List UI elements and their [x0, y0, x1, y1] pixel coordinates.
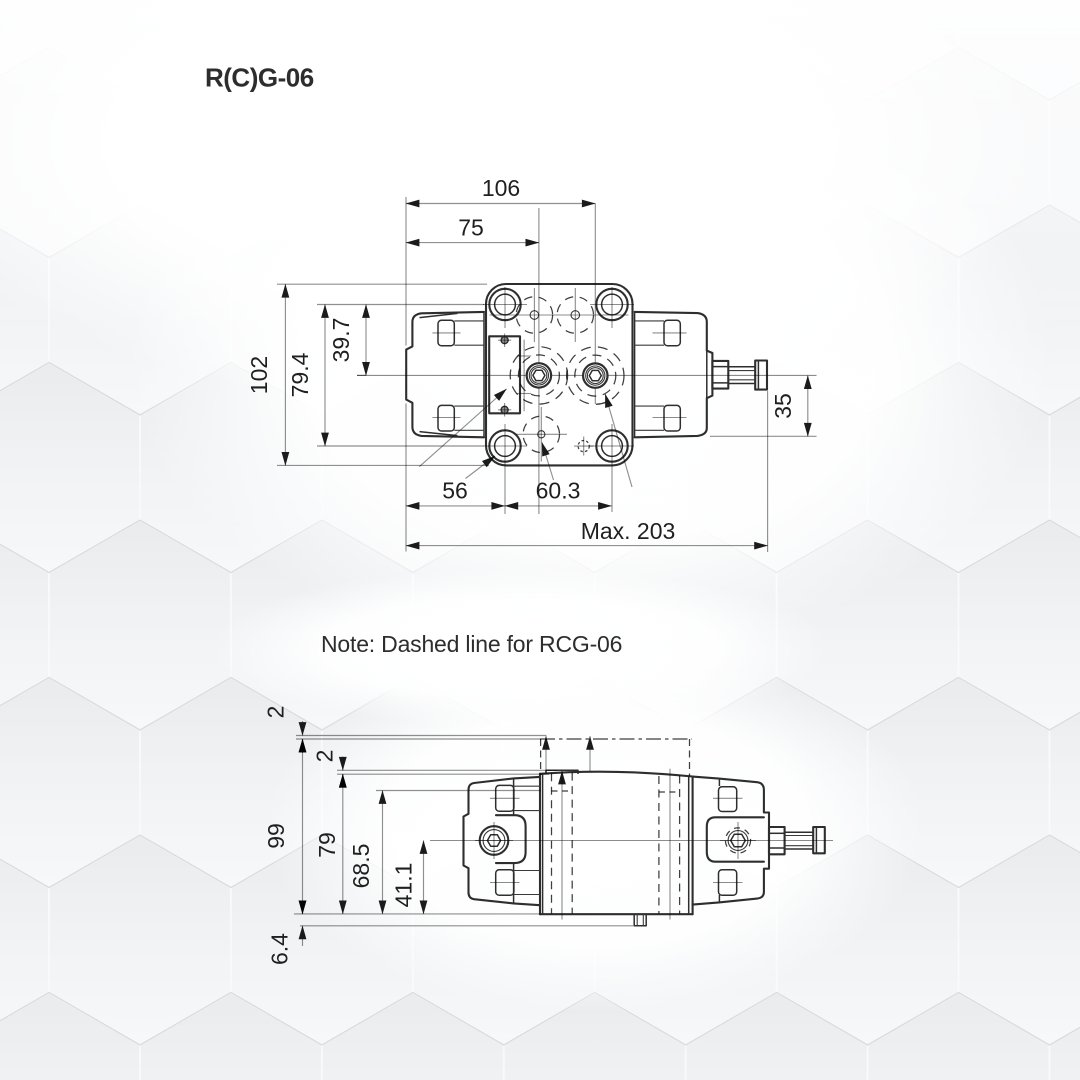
svg-text:79.4: 79.4 — [287, 352, 313, 397]
svg-text:56: 56 — [442, 478, 468, 504]
svg-text:99: 99 — [263, 823, 289, 849]
svg-text:2: 2 — [263, 706, 289, 719]
svg-text:6.4: 6.4 — [267, 933, 293, 965]
svg-text:102: 102 — [246, 356, 272, 394]
svg-text:68.5: 68.5 — [348, 844, 374, 889]
svg-text:41.1: 41.1 — [391, 863, 417, 908]
svg-text:39.7: 39.7 — [328, 318, 354, 363]
svg-text:35: 35 — [770, 393, 796, 419]
svg-text:75: 75 — [458, 215, 484, 241]
svg-text:106: 106 — [482, 175, 520, 201]
svg-text:Max. 203: Max. 203 — [581, 518, 676, 544]
svg-text:Note: Dashed line for RCG-06: Note: Dashed line for RCG-06 — [321, 631, 622, 657]
svg-text:79: 79 — [314, 832, 340, 858]
svg-text:60.3: 60.3 — [536, 478, 581, 504]
svg-text:2: 2 — [312, 750, 338, 763]
svg-text:R(C)G-06: R(C)G-06 — [205, 63, 314, 93]
